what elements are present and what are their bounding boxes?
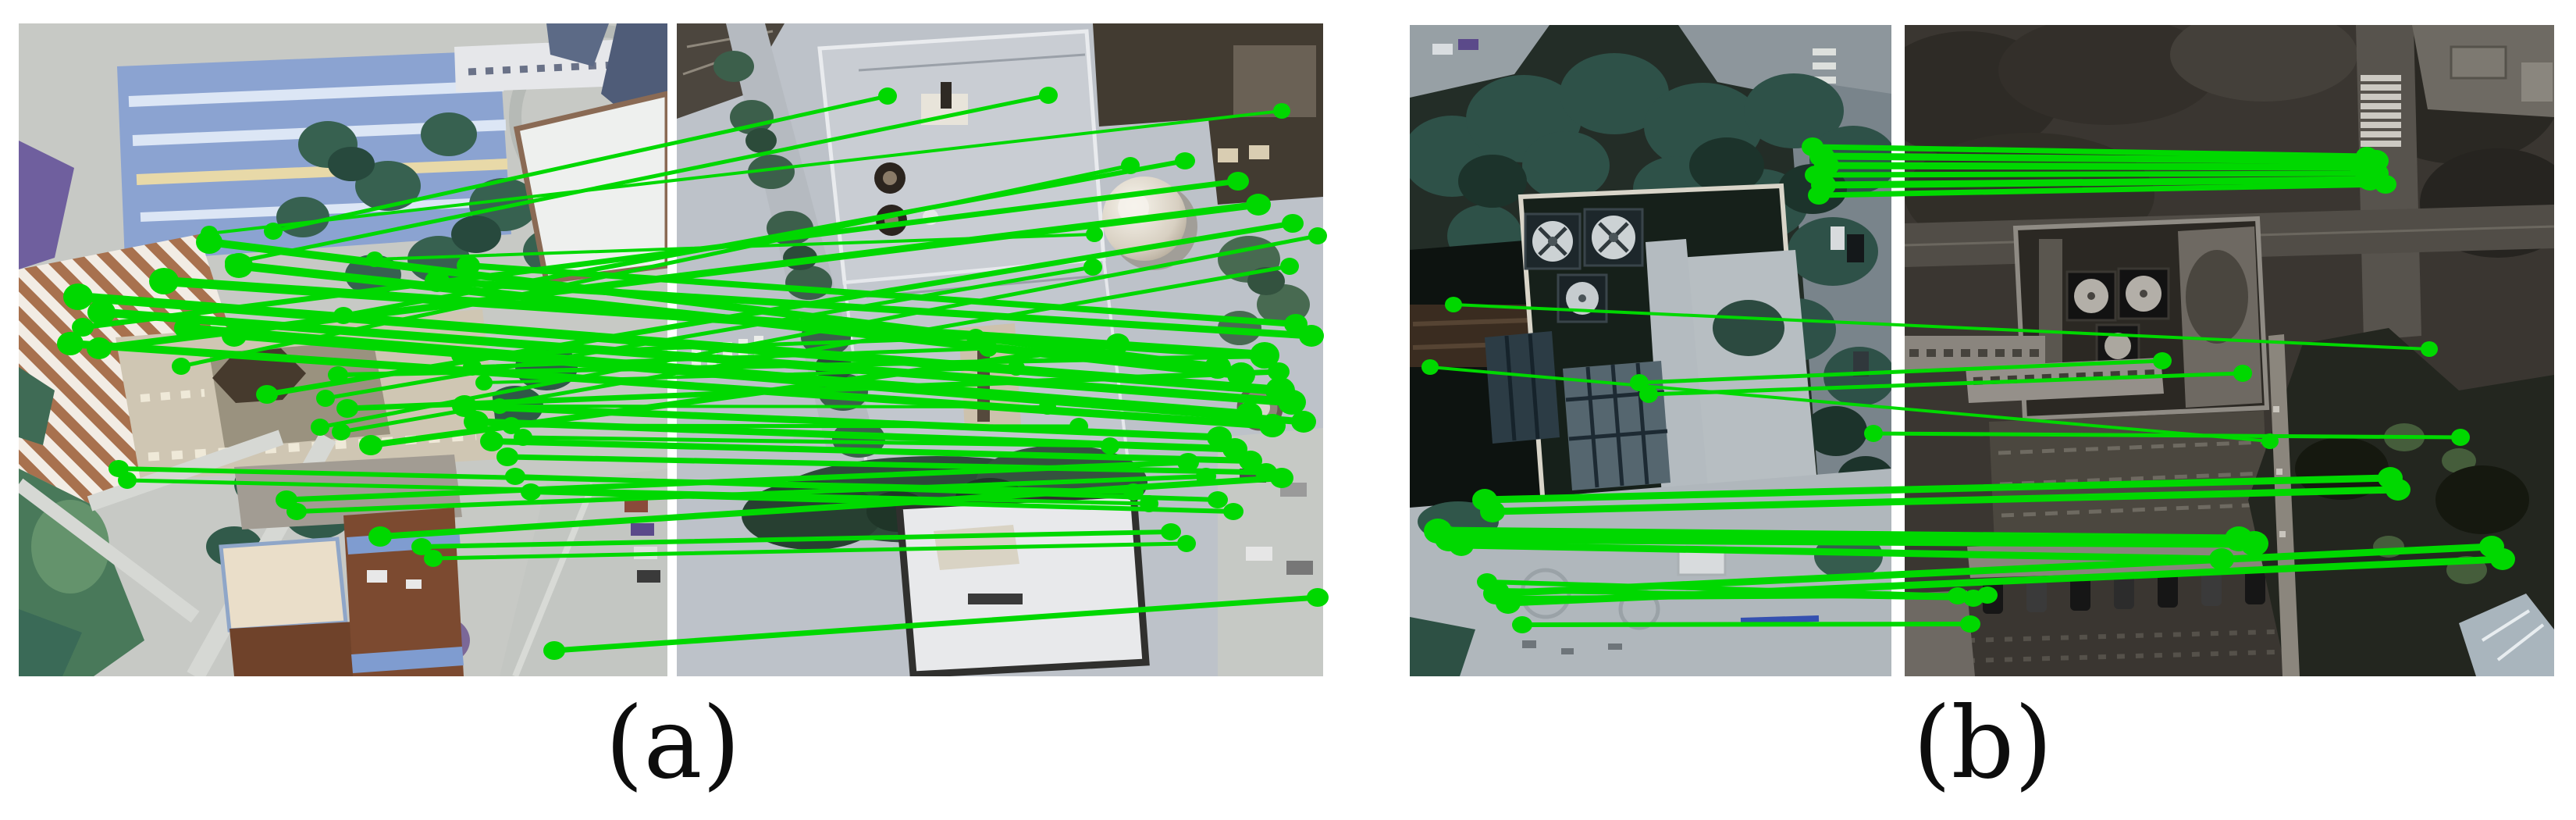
keypoint-dot bbox=[336, 399, 358, 418]
keypoint-dot bbox=[1496, 592, 1521, 614]
match-line bbox=[500, 406, 1048, 407]
keypoint-dot bbox=[1808, 186, 1830, 205]
keypoint-dot bbox=[2240, 531, 2268, 556]
keypoint-dot bbox=[1449, 534, 1474, 556]
corner-road-ir bbox=[1905, 590, 1975, 676]
keypoint-dot bbox=[149, 268, 179, 294]
keypoint-dot bbox=[1175, 152, 1195, 169]
keypoint-dot bbox=[286, 503, 307, 520]
keypoint-dot bbox=[1512, 616, 1532, 633]
keypoint-dot bbox=[979, 340, 998, 357]
match-line bbox=[1816, 173, 2378, 175]
keypoint-dot bbox=[2153, 352, 2172, 369]
match-line bbox=[1449, 539, 2254, 544]
keypoint-dot bbox=[368, 526, 392, 547]
keypoint-dot bbox=[118, 472, 137, 489]
keypoint-dot bbox=[225, 253, 253, 278]
keypoint-dot bbox=[425, 270, 450, 292]
keypoint-dot bbox=[1282, 214, 1304, 233]
keypoint-dot bbox=[316, 390, 335, 407]
keypoint-dot bbox=[1256, 348, 1276, 365]
keypoint-dot bbox=[878, 87, 897, 105]
hvac-building bbox=[1521, 186, 1819, 517]
keypoint-dot bbox=[1480, 501, 1505, 522]
keypoint-dot bbox=[1177, 453, 1199, 472]
keypoint-dot bbox=[496, 447, 518, 466]
keypoint-dot bbox=[1161, 523, 1181, 540]
keypoint-dot bbox=[1223, 503, 1244, 520]
keypoint-dot bbox=[63, 283, 93, 310]
keypoint-dot bbox=[464, 411, 489, 433]
keypoint-dot bbox=[1307, 588, 1329, 607]
keypoint-dot bbox=[1445, 297, 1462, 312]
subfigure-caption-b: (b) bbox=[1819, 692, 2147, 795]
keypoint-dot bbox=[174, 316, 201, 340]
match-line bbox=[1822, 156, 2376, 161]
keypoint-dot bbox=[521, 483, 541, 501]
keypoint-dot bbox=[475, 375, 493, 390]
keypoint-dot bbox=[543, 641, 565, 660]
keypoint-dot bbox=[2421, 341, 2438, 357]
keypoint-dot bbox=[1273, 103, 1290, 119]
feature-match-figure bbox=[0, 0, 2576, 820]
keypoint-dot bbox=[463, 358, 482, 376]
keypoint-dot bbox=[172, 358, 190, 375]
keypoint-dot bbox=[1083, 258, 1102, 276]
keypoint-dot bbox=[1308, 227, 1327, 244]
keypoint-dot bbox=[1977, 586, 1998, 604]
keypoint-dot bbox=[2233, 365, 2252, 382]
keypoint-dot bbox=[1208, 491, 1228, 508]
keypoint-dot bbox=[457, 255, 480, 276]
keypoint-dot bbox=[311, 419, 329, 436]
keypoint-dot bbox=[1280, 258, 1299, 275]
keypoint-dot bbox=[1284, 314, 1308, 334]
keypoint-dot bbox=[57, 332, 84, 355]
keypoint-dot bbox=[505, 468, 525, 485]
keypoint-dot bbox=[2490, 548, 2515, 570]
keypoint-dot bbox=[424, 550, 443, 567]
keypoint-dot bbox=[328, 366, 348, 383]
white-building bbox=[899, 494, 1146, 675]
keypoint-dot bbox=[1246, 194, 1271, 216]
keypoint-dot bbox=[1039, 399, 1056, 415]
match-line bbox=[1827, 166, 2362, 167]
keypoint-dot bbox=[1270, 468, 1293, 488]
subfigure-caption-a: (a) bbox=[509, 692, 837, 795]
keypoint-dot bbox=[222, 325, 247, 347]
keypoint-dot bbox=[196, 230, 222, 254]
keypoint-dot bbox=[2386, 479, 2411, 501]
keypoint-dot bbox=[1106, 333, 1130, 354]
keypoint-dot bbox=[1960, 615, 1980, 633]
keypoint-dot bbox=[1177, 535, 1196, 552]
keypoint-dot bbox=[1121, 157, 1140, 174]
keypoint-dot bbox=[1639, 386, 1658, 403]
keypoint-dot bbox=[359, 435, 382, 455]
keypoint-dot bbox=[1008, 360, 1025, 376]
keypoint-dot bbox=[2375, 175, 2396, 194]
keypoint-dot bbox=[1268, 362, 1290, 381]
keypoint-dot bbox=[332, 423, 350, 440]
match-line bbox=[1522, 624, 1970, 625]
photo-b-right bbox=[1873, 8, 2576, 676]
keypoint-dot bbox=[1086, 226, 1103, 242]
keypoint-dot bbox=[1864, 425, 1883, 442]
keypoint-dot bbox=[87, 300, 116, 325]
keypoint-dot bbox=[256, 385, 278, 404]
keypoint-dot bbox=[480, 431, 503, 451]
keypoint-dot bbox=[2451, 429, 2470, 446]
keypoint-dot bbox=[1227, 172, 1249, 191]
topright-buildings bbox=[2412, 25, 2554, 117]
keypoint-dot bbox=[1039, 87, 1058, 104]
figure-canvas: (a) (b) bbox=[0, 0, 2576, 820]
keypoint-dot bbox=[1291, 411, 1316, 433]
keypoint-dot bbox=[1421, 359, 1439, 375]
